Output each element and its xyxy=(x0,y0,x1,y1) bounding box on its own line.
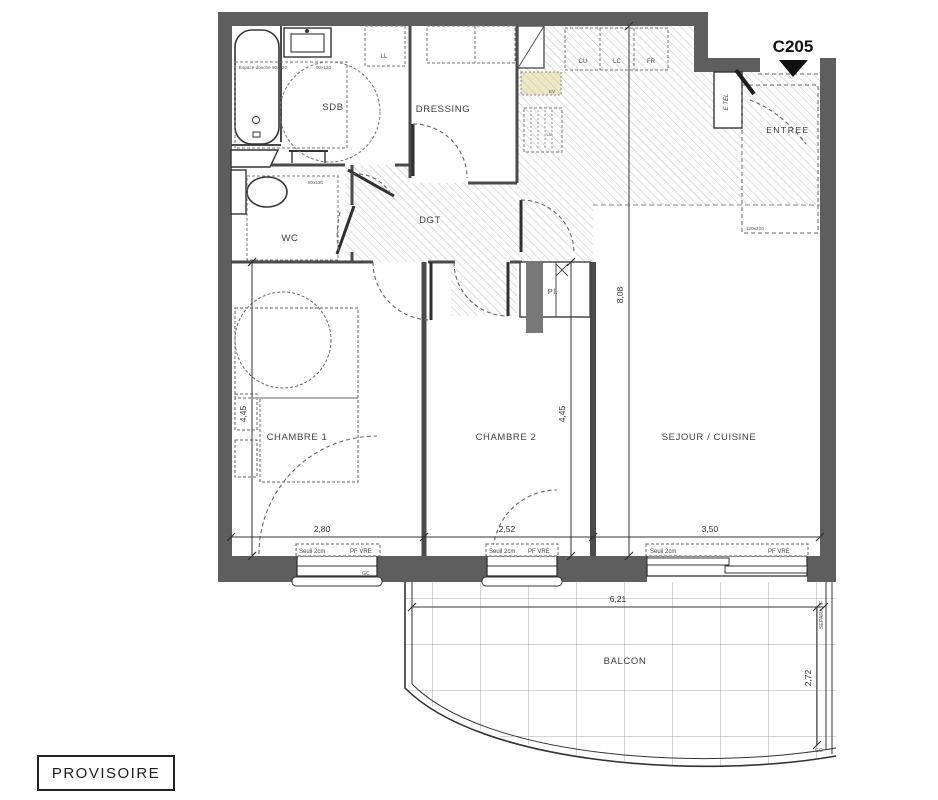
provisoire-stamp: PROVISOIRE xyxy=(38,756,174,790)
window1-type-label: PF VRE xyxy=(350,549,372,555)
toilet-bowl xyxy=(247,177,287,207)
wardrobe-outline xyxy=(427,26,515,63)
wc-fixtures xyxy=(231,150,287,214)
washbasin-faucet xyxy=(306,30,309,33)
duct-column xyxy=(526,262,543,333)
wall-bottom-seg4 xyxy=(807,556,836,582)
unit-id-label: C205 xyxy=(773,37,814,56)
wc-size-label: 80x130 xyxy=(308,180,324,185)
dressing-fixtures xyxy=(427,26,515,63)
placard-label: Pl. xyxy=(548,287,559,296)
douche-size-label: 90x120 xyxy=(316,65,332,70)
window1-seuil-label: Seuil 2cm xyxy=(299,549,325,555)
wall-right xyxy=(820,58,836,582)
bathtub xyxy=(235,30,279,144)
chambre1-label: CHAMBRE 1 xyxy=(267,432,328,443)
ll-label: LL xyxy=(381,54,388,60)
dim-ch2-w: 2,52 xyxy=(499,524,516,534)
chambre1-furniture xyxy=(235,292,358,482)
placard xyxy=(520,262,590,333)
window3-seuil-label: Seuil 2cm xyxy=(650,549,676,555)
dgt-label: DGT xyxy=(419,215,441,226)
bathtub-drain xyxy=(253,117,260,124)
wall-left xyxy=(218,12,232,582)
gc-window-label: GC xyxy=(362,571,370,577)
washer-ll-outline xyxy=(365,26,405,66)
window-sejour-panel2 xyxy=(725,566,807,573)
entry-size-label: 120x220 xyxy=(746,226,764,231)
lc-label: LC xyxy=(613,59,621,65)
sejour-label: SEJOUR / CUISINE xyxy=(662,432,757,443)
unit-marker: C205 xyxy=(773,37,814,77)
bathtub-tap xyxy=(253,132,260,137)
nightstand-bottom xyxy=(235,440,257,477)
floor-plan-page: SDB DRESSING WC DGT ENTREE Pl. CHAMBRE 1… xyxy=(0,0,938,800)
window2-seuil-label: Seuil 2cm xyxy=(489,549,515,555)
dim-sejour-w: 3,50 xyxy=(702,524,719,534)
dressing-label: DRESSING xyxy=(416,104,470,115)
etel-label: E.TEL xyxy=(724,94,730,111)
separatif-label: SEPARATIF xyxy=(819,601,825,629)
wall-top xyxy=(218,12,708,26)
espace-douche-label: Espace douche 90x120 xyxy=(239,65,287,70)
window-chambre1-sill xyxy=(292,577,382,586)
toilet-tank xyxy=(231,170,246,214)
sdb-fixtures xyxy=(235,28,331,163)
floor-plan-drawing: SDB DRESSING WC DGT ENTREE Pl. CHAMBRE 1… xyxy=(0,0,938,800)
entree-label: ENTREE xyxy=(766,125,809,135)
wall-bottom-seg3 xyxy=(557,556,647,582)
balcon-label: BALCON xyxy=(604,656,647,667)
dim-sejour-h: 8,08 xyxy=(615,286,625,303)
wall-bottom-seg1 xyxy=(218,556,297,582)
window-sejour-panel1 xyxy=(647,558,729,565)
dim-ch2-h: 4,45 xyxy=(557,405,567,422)
balcony xyxy=(405,582,836,777)
wc-label: WC xyxy=(281,233,298,244)
wall-bottom-seg2 xyxy=(377,556,487,582)
window2-type-label: PF VRE xyxy=(528,549,550,555)
wall-porch-top xyxy=(694,58,760,72)
cu-label: CU xyxy=(579,59,588,65)
dim-ch1-h: 4,45 xyxy=(238,405,248,422)
dim-balcon-d: 2,72 xyxy=(803,669,813,686)
sdb-label: SDB xyxy=(322,102,343,113)
wc-counter xyxy=(231,150,278,167)
chambre1-turning-circle xyxy=(235,292,331,388)
balcony-tile-grid xyxy=(405,582,836,777)
chambre2-label: CHAMBRE 2 xyxy=(476,432,537,443)
window-chambre2-sill xyxy=(482,577,562,586)
dim-balcon-w: 6,21 xyxy=(610,594,627,604)
dressing-door-swing xyxy=(413,124,467,178)
dim-ch1-w: 2,80 xyxy=(314,524,331,534)
window3-type-label: PF VRE xyxy=(768,549,790,555)
ev-label: EV xyxy=(549,89,556,94)
fr-label: FR xyxy=(647,59,656,65)
chambre1-clearance-outline xyxy=(235,308,358,398)
gc-balcony-label: GC xyxy=(815,748,823,754)
window1-swing xyxy=(259,436,377,554)
provisoire-stamp-label: PROVISOIRE xyxy=(52,765,160,782)
washbasin-bowl xyxy=(291,34,324,52)
corridor-hatch xyxy=(345,165,517,262)
